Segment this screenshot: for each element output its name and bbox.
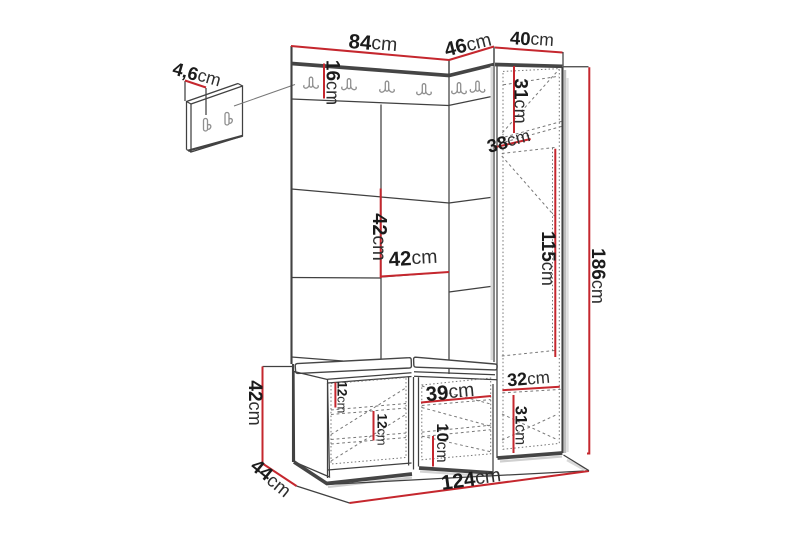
svg-text:31cm: 31cm (512, 406, 530, 445)
svg-text:46cm: 46cm (442, 29, 493, 62)
svg-text:42cm: 42cm (245, 380, 266, 425)
svg-text:16cm: 16cm (322, 60, 343, 105)
svg-text:10cm: 10cm (433, 423, 451, 462)
svg-text:4,6cm: 4,6cm (170, 57, 223, 91)
svg-text:42cm: 42cm (368, 213, 390, 261)
svg-text:42cm: 42cm (388, 245, 438, 271)
svg-text:84cm: 84cm (348, 29, 399, 56)
svg-text:115cm: 115cm (538, 231, 559, 286)
svg-text:31cm: 31cm (510, 78, 531, 123)
svg-text:186cm: 186cm (588, 248, 609, 304)
svg-text:44cm: 44cm (246, 455, 296, 501)
svg-text:12cm: 12cm (375, 413, 390, 445)
svg-text:12cm: 12cm (335, 381, 350, 413)
svg-text:40cm: 40cm (509, 26, 554, 50)
